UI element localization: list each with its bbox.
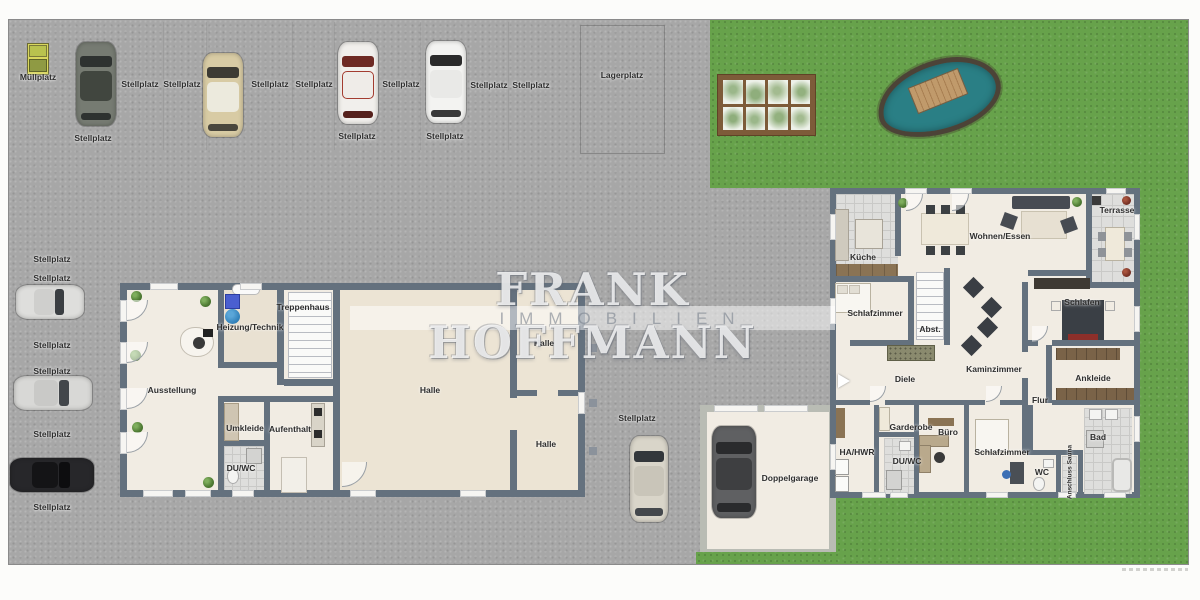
room-label-doppelgarage: Doppelgarage [762, 473, 819, 483]
sofa [1012, 196, 1070, 209]
lagerplatz-boundary [580, 25, 665, 154]
dining-chair [941, 205, 950, 214]
stellplatz-label: Stellplatz [33, 366, 70, 376]
wardrobe-dark [1034, 278, 1090, 289]
room-label-anschluss-sauna: Anschluss Sauna [1067, 445, 1074, 499]
wc-sink [1044, 460, 1053, 467]
car-silver-2 [14, 376, 92, 410]
aufenthalt-table [282, 458, 306, 492]
wardrobe [1056, 348, 1120, 360]
terrasse-table [1106, 228, 1124, 260]
desk-dark [1010, 462, 1024, 484]
room-label-diele: Diele [895, 374, 915, 384]
stellplatz-label: Stellplatz [33, 340, 70, 350]
dining-table [922, 214, 968, 244]
car-white-red [338, 42, 378, 124]
plant-red [1122, 268, 1131, 277]
parking-divider [334, 22, 335, 150]
room-label-schlafzimmer1: Schlafzimmer [847, 308, 902, 318]
post [589, 399, 597, 407]
room-label-duwc-house: DU/WC [893, 456, 922, 466]
stellplatz-label: Stellplatz [382, 79, 419, 89]
entrance-arrow [838, 374, 850, 388]
desk-printer [203, 329, 213, 337]
room-label-flur: Flur [1032, 395, 1048, 405]
kitchen-island [856, 220, 882, 248]
room-label-schlafzimmer2: Schlafzimmer [974, 447, 1029, 457]
car-middle [630, 436, 668, 522]
shower [246, 448, 262, 464]
room-label-schlafen: Schlafen [1064, 297, 1099, 307]
stellplatz-label: Stellplatz [338, 131, 375, 141]
room-label-wohnen-essen: Wohnen/Essen [970, 231, 1031, 241]
stellplatz-label: Stellplatz [33, 273, 70, 283]
dining-chair [941, 246, 950, 255]
terrasse-chair [1124, 232, 1132, 241]
muellplatz-icon [28, 44, 48, 74]
stellplatz-label: Stellplatz [163, 79, 200, 89]
site-plan: Müllplatz Lagerplatz Stellplatz Stellpla… [0, 0, 1200, 600]
stellplatz-label: Stellplatz [33, 502, 70, 512]
stellplatz-label: Stellplatz [618, 413, 655, 423]
plant [200, 296, 211, 307]
car-black [10, 458, 94, 492]
lagerplatz-label: Lagerplatz [601, 70, 644, 80]
room-label-heizung: Heizung/Technik [217, 322, 284, 332]
room-label-ausstellung: Ausstellung [148, 385, 197, 395]
room-label-hahwr: HA/HWR [840, 447, 875, 457]
terrasse-grill [1092, 196, 1101, 205]
muellplatz-label: Müllplatz [20, 72, 56, 82]
washer [836, 460, 848, 474]
room-label-aufenthalt: Aufenthalt [269, 424, 311, 434]
stellplatz-label: Stellplatz [33, 254, 70, 264]
terrasse-chair [1098, 248, 1106, 257]
room-label-umkleide: Umkleide [226, 423, 264, 433]
room-label-kaminzimmer: Kaminzimmer [966, 364, 1022, 374]
stellplatz-label: Stellplatz [470, 80, 507, 90]
dining-chair [926, 246, 935, 255]
garderobe-closet [880, 408, 889, 430]
room-label-halle: Halle [536, 439, 556, 449]
car-white [426, 41, 466, 123]
stellplatz-label: Stellplatz [121, 79, 158, 89]
plant-red [1122, 196, 1131, 205]
buero-desk [920, 436, 948, 446]
stellplatz-label: Stellplatz [251, 79, 288, 89]
car-garage [712, 426, 756, 518]
dining-chair [956, 246, 965, 255]
car-van [203, 53, 243, 137]
stellplatz-label: Stellplatz [74, 133, 111, 143]
garden-bed [718, 75, 815, 135]
stellplatz-label: Stellplatz [295, 79, 332, 89]
parking-divider [508, 22, 509, 150]
chair-blue [1002, 470, 1011, 479]
nightstand [1106, 302, 1114, 310]
shower [886, 470, 902, 490]
sideboard [888, 346, 934, 360]
shelf-brown [836, 408, 845, 438]
plant [1072, 197, 1082, 207]
room-label-treppenhaus: Treppenhaus [277, 302, 330, 312]
stellplatz-label: Stellplatz [33, 429, 70, 439]
fineprint [1122, 568, 1188, 571]
terrasse-chair [1098, 232, 1106, 241]
room-label-abst: Abst. [919, 324, 940, 334]
parking-divider [292, 22, 293, 150]
room-label-bad: Bad [1090, 432, 1106, 442]
wardrobe [1056, 388, 1134, 400]
desk-chair [193, 337, 205, 349]
car-silver-1 [16, 285, 84, 319]
plant [203, 477, 214, 488]
room-label-duwc-hall: DU/WC [227, 463, 256, 473]
dryer [836, 477, 848, 491]
car-suv [76, 42, 116, 126]
room-label-halle: Halle [420, 385, 440, 395]
bad-sink [1106, 410, 1117, 419]
lawn-strip [696, 552, 840, 564]
parking-divider [420, 22, 421, 150]
bathtub [1112, 458, 1132, 492]
stellplatz-label: Stellplatz [426, 131, 463, 141]
room-label-garderobe: Garderobe [890, 422, 933, 432]
stellplatz-label: Stellplatz [512, 80, 549, 90]
watermark-subbrand: IMMOBILIEN [452, 309, 797, 329]
sink [900, 442, 910, 450]
bad-sink [1090, 410, 1101, 419]
room-label-kueche: Küche [850, 252, 876, 262]
room-label-buero: Büro [938, 427, 958, 437]
heizung-unit-blue [226, 295, 239, 308]
room-label-wc: WC [1035, 467, 1049, 477]
office-chair [934, 452, 945, 463]
room-label-terrasse: Terrasse [1100, 205, 1135, 215]
dining-chair [926, 205, 935, 214]
room-label-ankleide: Ankleide [1075, 373, 1110, 383]
nightstand [1052, 302, 1060, 310]
terrasse-chair [1124, 248, 1132, 257]
post [589, 447, 597, 455]
umkleide-bench [225, 404, 238, 440]
wc-toilet [1034, 478, 1044, 490]
kitchen-counter-left [836, 210, 848, 260]
